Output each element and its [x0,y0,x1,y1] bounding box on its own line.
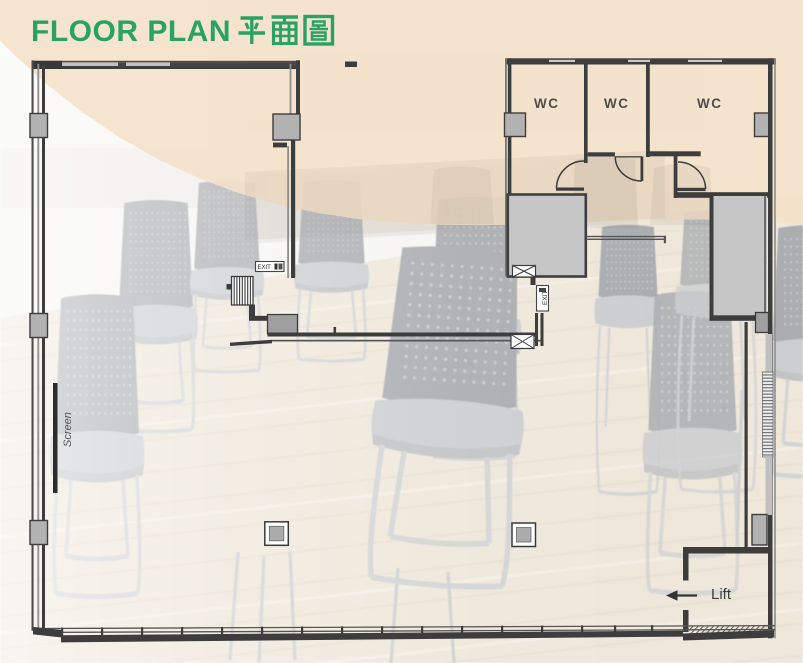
svg-text:EXIT: EXIT [258,265,272,271]
svg-text:WC: WC [534,96,560,111]
svg-text:WC: WC [604,96,630,111]
svg-text:Lift: Lift [711,586,732,603]
svg-text:WC: WC [697,96,723,111]
svg-text:Screen: Screen [62,412,74,447]
svg-text:EXIT: EXIT [542,291,549,305]
